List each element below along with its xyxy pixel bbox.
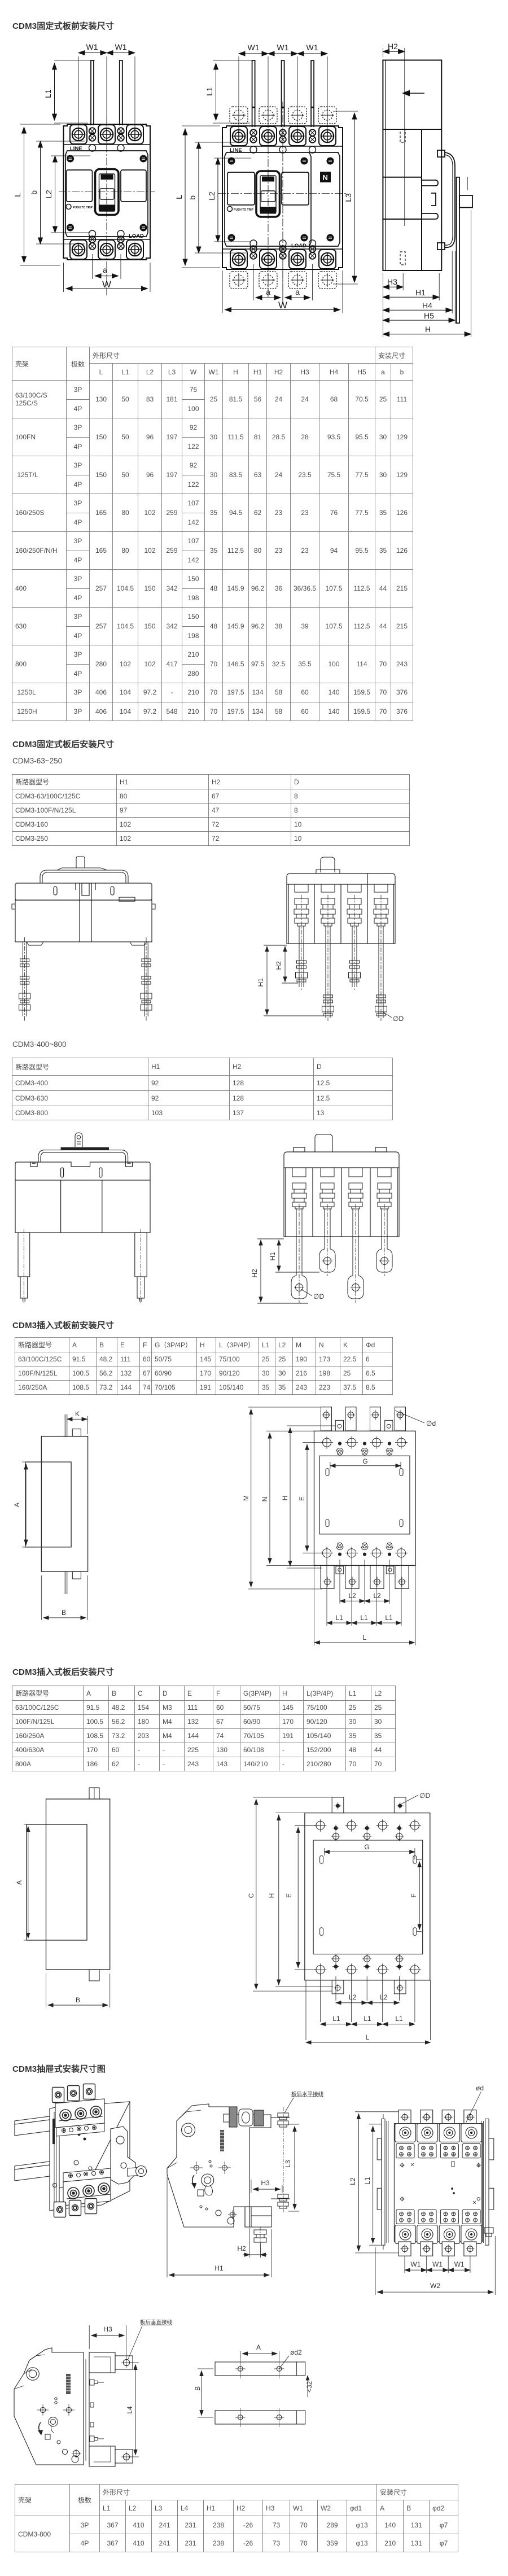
svg-text:W1: W1 [248, 43, 260, 52]
svg-text:PUSH TO TRIP: PUSH TO TRIP [73, 206, 93, 209]
svg-text:L1: L1 [332, 2015, 340, 2023]
svg-text:G: G [362, 1457, 367, 1465]
svg-text:H1: H1 [269, 1252, 277, 1261]
svg-text:W1: W1 [277, 43, 289, 52]
svg-text:PUSH TO TRIP: PUSH TO TRIP [234, 208, 254, 212]
svg-text:a: a [103, 265, 107, 274]
svg-text:M: M [242, 1495, 250, 1501]
svg-text:∅d: ∅d [426, 1420, 436, 1427]
svg-text:L1: L1 [364, 2015, 371, 2023]
svg-text:G: G [364, 1843, 369, 1851]
svg-text:C: C [247, 1893, 255, 1898]
svg-text:ød2: ød2 [290, 2348, 302, 2356]
svg-text:H1: H1 [257, 978, 265, 987]
svg-text:H4: H4 [422, 301, 432, 310]
svg-text:H1: H1 [415, 288, 426, 297]
svg-text:L2: L2 [207, 191, 216, 200]
svg-text:∅D: ∅D [419, 1792, 430, 1800]
svg-text:b: b [188, 195, 197, 200]
svg-text:a: a [295, 287, 300, 296]
svg-text:W1: W1 [454, 2260, 465, 2268]
svg-text:W1: W1 [115, 42, 127, 51]
svg-text:H2: H2 [388, 42, 398, 51]
svg-text:∅D: ∅D [393, 1015, 404, 1023]
svg-text:L1: L1 [335, 1614, 343, 1622]
svg-text:L1: L1 [364, 2177, 371, 2185]
svg-text:H3: H3 [387, 277, 397, 286]
svg-text:H: H [268, 1893, 275, 1898]
svg-text:L2: L2 [348, 1592, 356, 1600]
svg-text:<32: <32 [305, 2381, 313, 2392]
svg-text:L2: L2 [349, 2177, 357, 2185]
svg-text:B: B [62, 1609, 66, 1617]
svg-text:F: F [410, 1893, 418, 1897]
svg-text:H3: H3 [103, 2325, 112, 2333]
svg-text:a: a [266, 287, 270, 296]
svg-text:板后水平接线: 板后水平接线 [291, 2091, 324, 2098]
svg-text:L: L [363, 1634, 367, 1641]
svg-text:W2: W2 [430, 2282, 440, 2290]
svg-text:H2: H2 [237, 2245, 246, 2252]
svg-text:L1: L1 [205, 87, 214, 96]
svg-text:H5: H5 [424, 311, 434, 320]
svg-text:L1: L1 [43, 89, 52, 98]
svg-text:H: H [281, 1496, 289, 1501]
svg-text:L1: L1 [385, 1614, 393, 1622]
svg-text:H3: H3 [261, 2179, 270, 2187]
svg-text:L: L [174, 195, 183, 199]
svg-text:A: A [13, 1503, 21, 1507]
svg-text:∅D: ∅D [313, 1293, 324, 1300]
svg-text:A: A [15, 1880, 23, 1885]
svg-text:ød: ød [476, 2084, 484, 2092]
svg-text:W1: W1 [306, 43, 318, 52]
svg-text:W1: W1 [432, 2260, 443, 2268]
svg-text:H2: H2 [275, 961, 283, 970]
svg-text:L3: L3 [344, 193, 353, 202]
svg-text:W: W [102, 279, 111, 290]
svg-text:E: E [285, 1893, 293, 1898]
svg-text:L2: L2 [44, 190, 53, 199]
svg-text:L2: L2 [373, 1592, 381, 1600]
svg-text:L1: L1 [360, 1614, 368, 1622]
svg-text:B: B [194, 2386, 202, 2391]
svg-text:L2: L2 [349, 1993, 357, 2001]
svg-text:N: N [261, 1497, 269, 1502]
svg-text:板后垂直接线: 板后垂直接线 [140, 2319, 173, 2326]
svg-text:L3: L3 [284, 2160, 292, 2168]
svg-text:B: B [76, 1996, 80, 2004]
svg-text:H2: H2 [251, 1269, 259, 1278]
svg-text:W1: W1 [410, 2260, 421, 2268]
svg-text:L2: L2 [380, 1993, 388, 2001]
svg-text:L: L [13, 193, 22, 197]
svg-text:A: A [256, 2343, 261, 2351]
svg-text:E: E [298, 1496, 306, 1501]
svg-text:K: K [75, 1410, 80, 1418]
svg-text:W1: W1 [86, 42, 98, 51]
svg-text:H: H [425, 325, 431, 334]
svg-text:N: N [323, 173, 328, 182]
svg-text:L4: L4 [126, 2406, 134, 2414]
svg-text:b: b [29, 190, 38, 195]
svg-text:L1: L1 [395, 2015, 403, 2023]
svg-text:H1: H1 [214, 2264, 224, 2272]
svg-text:L: L [366, 2033, 370, 2041]
svg-text:W: W [278, 300, 287, 311]
